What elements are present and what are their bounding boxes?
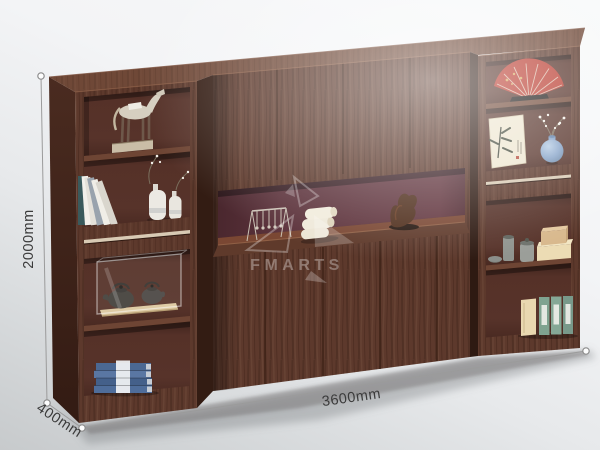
left-column bbox=[75, 81, 197, 423]
right-column-side-panel bbox=[470, 52, 478, 357]
cabinet-render-svg: 2000mm 400mm 3600mm FMARTS bbox=[0, 0, 600, 450]
product-image: 2000mm 400mm 3600mm FMARTS bbox=[0, 0, 600, 450]
stacked-boxes bbox=[537, 226, 573, 264]
left-column-side-panel bbox=[197, 75, 213, 408]
height-label: 2000mm bbox=[21, 209, 37, 268]
cabinet-left-side bbox=[49, 77, 79, 423]
ink-painting-card bbox=[489, 115, 526, 168]
blue-book-stack bbox=[91, 361, 159, 397]
height-dimension-line bbox=[41, 76, 47, 403]
watermark-text: FMARTS bbox=[250, 257, 344, 274]
center-section bbox=[213, 52, 470, 391]
right-column bbox=[478, 46, 580, 356]
green-binders bbox=[518, 296, 578, 339]
